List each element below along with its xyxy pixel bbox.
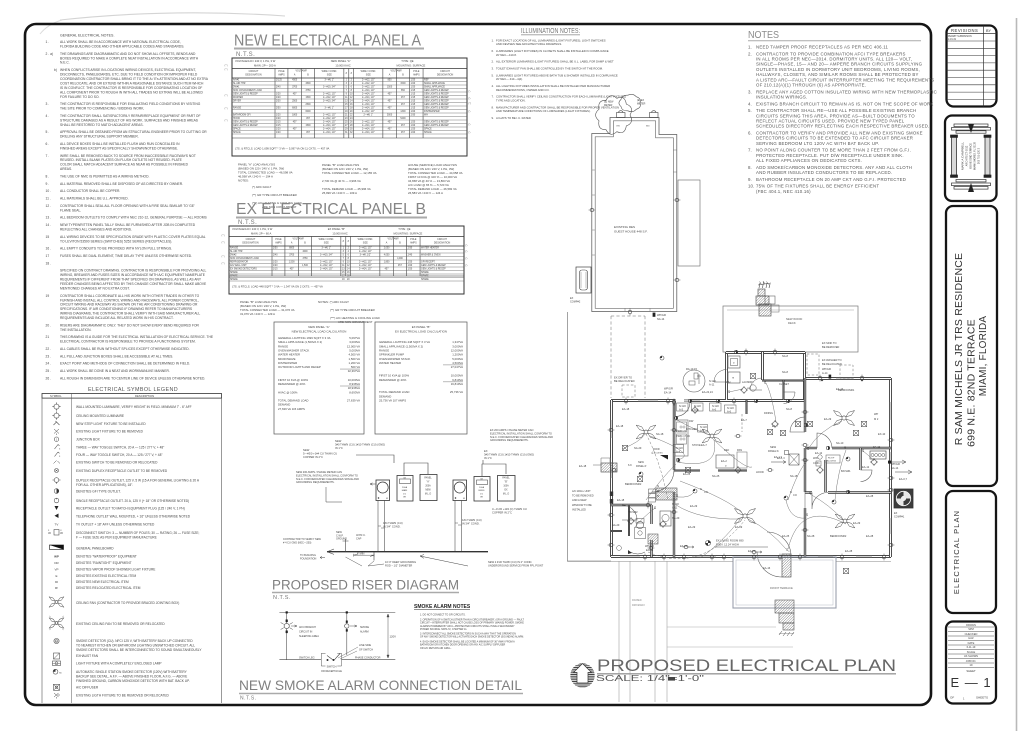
svg-text:ROD – 1/2" DIAMETER: ROD – 1/2" DIAMETER: [385, 564, 412, 568]
svg-text:A-6: A-6: [700, 429, 705, 433]
svg-text:THE CONTRACTOR IS RESPONSIBLE: THE CONTRACTOR IS RESPONSIBLE FOR EVALUA…: [60, 102, 201, 106]
svg-text:CIRCUIT: CIRCUIT: [246, 238, 256, 241]
svg-text:2—#14, 1/2": 2—#14, 1/2": [359, 269, 372, 271]
svg-text:5 .: 5 .: [46, 130, 50, 134]
svg-text:BATH#1: BATH#1: [841, 469, 851, 473]
svg-text:1/20: 1/20: [411, 129, 416, 131]
svg-text:CIRCUIT WIRING AND RACEWAY AS: CIRCUIT WIRING AND RACEWAY AS SHOWN ON T…: [60, 303, 198, 307]
svg-text:ALL DEVICE BOXES SHALL BE INST: ALL DEVICE BOXES SHALL BE INSTALLED FLUS…: [60, 142, 180, 146]
svg-text:2—#14, 1/2": 2—#14, 1/2": [362, 97, 375, 99]
svg-text:4000: 4000: [302, 251, 308, 253]
svg-text:JOB NO.: JOB NO.: [966, 659, 977, 663]
svg-text:NA-14: NA-14: [657, 317, 665, 321]
svg-text:IN 1"C: IN 1"C: [484, 456, 492, 460]
svg-text:N.E.C. FOR DEDICATED CLEARANCE: N.E.C. FOR DEDICATED CLEARANCES SPACE AN…: [490, 435, 553, 439]
svg-text:GEN LIGHTS & RECEP: GEN LIGHTS & RECEP: [424, 94, 449, 96]
svg-text:EA-25: EA-25: [748, 549, 756, 553]
svg-text:EX ELECTRICAL LOAD CALCULATION: EX ELECTRICAL LOAD CALCULATION: [395, 330, 447, 334]
svg-text:6.: 6.: [748, 131, 752, 136]
svg-text:NA-8: NA-8: [782, 370, 788, 374]
svg-text:(**): (**): [222, 242, 225, 244]
svg-text:2—#14, 1/2": 2—#14, 1/2": [323, 132, 336, 134]
svg-text:699 NE 82ND TERRACE: 699 NE 82ND TERRACE: [970, 143, 973, 169]
svg-text:2/40: 2/40: [408, 255, 413, 257]
svg-text:3 .: 3 .: [46, 102, 50, 106]
svg-text:TOILET EXHAUST FAN SHALL BE CO: TOILET EXHAUST FAN SHALL BE CONTROLLED B…: [496, 67, 603, 71]
svg-text:3/4"R.C.: 3/4"R.C.: [356, 533, 366, 537]
svg-text:AND RUBBER INSULATED CONDUC: AND RUBBER INSULATED CONDUCTORS TO BE RE…: [756, 170, 892, 175]
svg-text:1#4 THWN (CU): 1#4 THWN (CU): [462, 518, 482, 522]
svg-text:GEN LIGHTS & RECEP: GEN LIGHTS & RECEP: [424, 122, 449, 124]
svg-text:N: N: [700, 487, 702, 491]
svg-text:WP/GFI: WP/GFI: [657, 313, 667, 317]
svg-text:DRILLING ANY STRUCTURAL SUPPOR: DRILLING ANY STRUCTURAL SUPPORT MEMBER.: [60, 135, 139, 139]
svg-text:EA-7: EA-7: [741, 418, 747, 422]
svg-text:2—#12, 1/2": 2—#12, 1/2": [323, 115, 336, 117]
svg-text:3R: 3R: [403, 497, 406, 499]
svg-text:R SAM MICHELS JR TRS RESI: R SAM MICHELS JR TRS RESIDENCE: [953, 253, 965, 446]
svg-text:LIGHT FIXTURE WITH A COMPLETEL: LIGHT FIXTURE WITH A COMPLETELY ENCLOSED…: [76, 662, 162, 666]
svg-text:POLE: POLE: [413, 71, 420, 73]
svg-text:WP/GFI: WP/GFI: [891, 462, 901, 466]
svg-text:PANEL: PANEL: [502, 477, 510, 480]
svg-text:EX PANEL "B": EX PANEL "B": [328, 227, 345, 231]
svg-text:N GFI: N GFI: [676, 446, 683, 450]
svg-text:(*) ARC FAULT: (*) ARC FAULT: [252, 185, 272, 189]
svg-text:1.: 1.: [492, 39, 495, 43]
svg-text:2—#12, 1/2": 2—#12, 1/2": [323, 118, 336, 120]
svg-text:26,583 VA / 240 V — 124: 26,583 VA / 240 V — 124 A: [408, 191, 443, 195]
svg-text:1500: 1500: [305, 125, 311, 127]
svg-text:7 .: 7 .: [46, 154, 50, 158]
svg-text:A-4: A-4: [676, 450, 681, 454]
svg-text:CO: CO: [704, 490, 708, 494]
svg-text:A-11: A-11: [709, 383, 715, 387]
svg-text:SCALE: SCALE: [967, 650, 976, 654]
svg-text:MIAMI, FLORIDA: MIAMI, FLORIDA: [978, 316, 989, 397]
svg-text:EX LIVING ROOM 690: EX LIVING ROOM 690: [716, 539, 744, 543]
svg-text:INSULATION WIRINGS.: INSULATION WIRINGS.: [756, 95, 807, 100]
svg-text:GEN LIGHTS & RECEP: GEN LIGHTS & RECEP: [424, 101, 449, 103]
svg-text:THREE — WAY TOGGLE SWITCH, 20: THREE — WAY TOGGLE SWITCH, 20 A — 125 / …: [76, 446, 164, 450]
svg-text:ROOF: ROOF: [653, 448, 660, 451]
svg-text:ALL ROUGH IN DIMENSION ARE TO: ALL ROUGH IN DIMENSION ARE TO CENTER LIN…: [60, 376, 205, 380]
svg-text:1/15: 1/15: [411, 108, 416, 110]
svg-text:TELEPHONE OUTLET WALL MOUNTED,: TELEPHONE OUTLET WALL MOUNTED, + 16" UNL…: [76, 515, 191, 519]
svg-text:DW#2: DW#2: [230, 255, 237, 257]
svg-text:16,819VA: 16,819VA: [451, 382, 463, 386]
svg-text:N: N: [790, 490, 792, 494]
svg-text:SCALE: 1/4"=1'-0": SCALE: 1/4"=1'-0": [596, 674, 704, 683]
svg-text:REMAINDER @ 40%: REMAINDER @ 40%: [379, 378, 407, 382]
svg-text:REVISIONS: REVISIONS: [951, 28, 978, 33]
svg-text:FEEDER CHANGES BEING AFFECTED: FEEDER CHANGES BEING AFFECTED BY THIS CH…: [60, 282, 207, 286]
svg-text:100A: 100A: [503, 485, 509, 488]
svg-text:8.: 8.: [492, 105, 495, 109]
svg-text:m: m: [732, 377, 734, 380]
svg-text:WALL MOUNTED LUMINAIRE, VERIFY: WALL MOUNTED LUMINAIRE, VERIFY HEIGHT IN…: [76, 405, 192, 409]
svg-text:18 .: 18 .: [46, 261, 52, 265]
svg-text:N.T.S.: N.T.S.: [273, 595, 291, 601]
svg-text:2—#12, 1/2": 2—#12, 1/2": [362, 80, 375, 82]
svg-text:5400: 5400: [400, 118, 406, 120]
svg-text:N GFI: N GFI: [700, 425, 707, 429]
svg-text:REFLECTING ALL CHANGES AND ADD: REFLECTING ALL CHANGES AND ADDITIONS.: [60, 227, 132, 231]
svg-text:WASHER & OVEN: WASHER & OVEN: [421, 254, 441, 257]
svg-text:SHEET: SHEET: [966, 669, 976, 673]
svg-text:SMOKE: SMOKE: [360, 626, 369, 629]
svg-text:ALL EMPTY CONDUITS TO BE PROVI: ALL EMPTY CONDUITS TO BE PROVIDED WITH N…: [60, 247, 172, 251]
svg-text:1,800: 1,800: [384, 262, 390, 264]
svg-text:2—#12, 1/2": 2—#12, 1/2": [362, 111, 375, 113]
svg-text:VOLT AMP.: VOLT AMP.: [390, 70, 402, 73]
svg-text:COST RELOCATE, AND OR EXTEND W: COST RELOCATE, AND OR EXTEND WITHIN A RE…: [60, 81, 204, 85]
svg-text:WIRE / COND.: WIRE / COND.: [322, 71, 338, 73]
svg-text:24 .: 24 .: [46, 362, 52, 366]
svg-text:ROOF: ROOF: [828, 458, 835, 460]
svg-text:NEW: NEW: [770, 445, 777, 449]
svg-text:CIRCUIT: CIRCUIT: [440, 70, 450, 73]
svg-text:EX DRYER TO: EX DRYER TO: [614, 376, 632, 380]
svg-text:26 .: 26 .: [46, 376, 52, 380]
svg-text:13 .: 13 .: [46, 216, 52, 220]
svg-text:A-6: A-6: [712, 408, 717, 412]
svg-text:POLE: POLE: [275, 239, 282, 241]
svg-text:GEN LIGHTS & RECEP: GEN LIGHTS & RECEP: [233, 122, 258, 124]
svg-text:2/50: 2/50: [276, 108, 281, 110]
svg-text:VOLTAGE/120 / 240 V, 1 PH, 3 W: VOLTAGE/120 / 240 V, 1 PH, 3 W: [232, 227, 273, 231]
svg-text:VOLT AMP.: VOLT AMP.: [387, 238, 399, 241]
svg-text:4,000: 4,000: [384, 255, 390, 257]
svg-text:FINISHED GROUND, CARBON MONOXI: FINISHED GROUND, CARBON MONOXIDE DETECTO…: [76, 679, 190, 683]
svg-text:WIRING, BREAKER AND FUSES SIZE: WIRING, BREAKER AND FUSES SIZES IN ACCOR…: [60, 273, 206, 277]
svg-text:SPACE: SPACE: [233, 131, 241, 134]
svg-text:EA-29: EA-29: [690, 504, 698, 508]
svg-text:10,000 KAIC: 10,000 KAIC: [332, 231, 347, 235]
svg-text:9 .: 9 .: [46, 182, 50, 186]
svg-text:4.: 4.: [492, 84, 495, 88]
svg-text:1/20: 1/20: [276, 129, 281, 131]
svg-text:VOLT AMP.: VOLT AMP.: [296, 70, 308, 73]
svg-text:N.E.C. FOR DEDICATED CLEARANCE: N.E.C. FOR DEDICATED CLEARANCES SPACE AN…: [296, 477, 359, 481]
svg-text:S: S: [657, 494, 659, 498]
svg-text:THE CONTRACTOR SHALL SATISFACT: THE CONTRACTOR SHALL SATISFACTORILY REPA…: [60, 114, 201, 118]
svg-text:1/20: 1/20: [276, 97, 281, 99]
svg-text:11 .: 11 .: [46, 197, 51, 201]
svg-text:8 .: 8 .: [46, 174, 50, 178]
svg-text:NEW ELECTRICAL PANEL A: NEW ELECTRICAL PANEL A: [234, 33, 422, 50]
svg-text:WP/GFI: WP/GFI: [822, 367, 832, 371]
svg-text:BE RELOCATED: BE RELOCATED: [614, 379, 635, 383]
svg-text:A/C DIFFUSER: A/C DIFFUSER: [76, 686, 99, 690]
svg-text:ALL FIXED APPLIANCES ON DE: ALL FIXED APPLIANCES ON DEDICATED CKTS.: [756, 158, 862, 163]
svg-text:MENTIONED CHANGES AT NO EXTRA: MENTIONED CHANGES AT NO EXTRA COST.: [60, 286, 130, 290]
svg-text:7.: 7.: [748, 148, 752, 153]
svg-text:EX SMOKE DETECTORS: EX SMOKE DETECTORS: [230, 269, 257, 271]
svg-text:EA-18: EA-18: [579, 464, 587, 468]
svg-text:KITCHEN: KITCHEN: [686, 427, 698, 431]
svg-text:N GFI: N GFI: [694, 404, 701, 408]
svg-text:TO NEAREST KITCHEN OR BATHROOM: TO NEAREST KITCHEN OR BATHROOM LIGHTING …: [76, 643, 195, 647]
svg-text:WIRING DIAGRAMS, THE CONTRACTO: WIRING DIAGRAMS, THE CONTRACTOR SHALL VE…: [60, 312, 200, 316]
svg-text:N.T.S.: N.T.S.: [240, 696, 257, 702]
svg-text:NON CONCURRENT LOAD: NON CONCURRENT LOAD: [230, 257, 259, 260]
svg-text:AS SHOWN: AS SHOWN: [964, 654, 978, 658]
svg-text:MIAMI SHORES, FL 33138: MIAMI SHORES, FL 33138: [974, 141, 977, 170]
svg-text:RANGE: RANGE: [233, 107, 242, 110]
svg-text:(**): (**): [225, 65, 228, 67]
svg-text:2—#14, 1/2": 2—#14, 1/2": [362, 101, 375, 103]
svg-text:AFCI BRANCH: AFCI BRANCH: [299, 626, 316, 629]
svg-text:IN 3/4" COND.: IN 3/4" COND.: [462, 522, 480, 526]
svg-text:2500: 2500: [292, 101, 298, 103]
svg-text:DESIGNATION: DESIGNATION: [434, 242, 451, 245]
svg-text:M 2: M 2: [874, 417, 879, 421]
svg-text:OF SWITCH: OF SWITCH: [359, 648, 373, 651]
svg-text:EA-29: EA-29: [824, 417, 832, 421]
svg-text:PAN: PAN: [737, 448, 742, 452]
svg-text:RISERS ARE DIAGRAMMATIC ONLY.: RISERS ARE DIAGRAMMATIC ONLY. THEY DO NO…: [60, 323, 200, 327]
svg-text:S: S: [764, 381, 766, 385]
svg-text:JUNCTION BOX: JUNCTION BOX: [76, 438, 101, 442]
svg-text:PHASE CONDUCTOR: PHASE CONDUCTOR: [355, 656, 381, 659]
svg-text:200A: 200A: [425, 485, 431, 488]
svg-text:ILLUMINATION NOTES:: ILLUMINATION NOTES:: [521, 26, 580, 35]
svg-text:BE RELOCATED: BE RELOCATED: [822, 362, 842, 366]
svg-text:S: S: [844, 446, 846, 450]
svg-text:(**): (**): [468, 103, 471, 105]
svg-text:(*): (*): [468, 91, 471, 93]
svg-text:BATHROOM GFI: BATHROOM GFI: [233, 114, 251, 117]
svg-text:3—#6, 1": 3—#6, 1": [325, 80, 335, 82]
svg-text:AMPS: AMPS: [413, 74, 420, 77]
svg-text:ELEV. 12.24' HIGH: ELEV. 12.24' HIGH: [716, 543, 739, 547]
svg-text:BID: BID: [646, 126, 650, 128]
svg-text:THE DRAWINGS ARE DIAGRAMMATIC: THE DRAWINGS ARE DIAGRAMMATIC AND DO NOT…: [60, 52, 196, 56]
svg-text:6-11-19: 6-11-19: [967, 645, 976, 649]
svg-text:A/A#1: A/A#1: [233, 79, 240, 82]
svg-text:3R: 3R: [480, 497, 483, 499]
svg-text:699 N.E. 82ND TERRACE: 699 N.E. 82ND TERRACE: [966, 319, 978, 447]
svg-text:2/30: 2/30: [411, 115, 416, 117]
svg-text:BOXES REQUIRED TO MAKE A COMPL: BOXES REQUIRED TO MAKE A COMPLETE NEAT I…: [60, 56, 199, 60]
svg-text:EA-12: EA-12: [873, 445, 881, 449]
svg-text:W/ NEC—410.8.: W/ NEC—410.8.: [496, 53, 517, 57]
svg-text:HOOD: HOOD: [233, 118, 240, 120]
svg-text:1/20: 1/20: [408, 269, 413, 271]
svg-text:3#0 THWN (CU) 1#10 THWN (CU) (: 3#0 THWN (CU) 1#10 THWN (CU) (GND): [484, 453, 534, 457]
svg-text:2 . a): 2 . a): [46, 52, 54, 56]
svg-text:EXISTING DUPLEX RECEPTACLE OUT: EXISTING DUPLEX RECEPTACLE OUTLET TO BE …: [76, 469, 168, 473]
svg-text:NEW PANEL "A": NEW PANEL "A": [308, 325, 330, 329]
svg-text:FRONT TERRACE: FRONT TERRACE: [770, 586, 793, 590]
svg-text:AI HATS TO BE I.C. RATED: AI HATS TO BE I.C. RATED: [496, 116, 531, 120]
svg-text:(**): (**): [222, 256, 225, 258]
svg-text:HAZ: HAZ: [968, 636, 974, 640]
svg-text:SCHEDULES DIRECTORY REFLECTI: SCHEDULES DIRECTORY REFLECTING EACH RESP…: [756, 124, 929, 129]
svg-text:1/20: 1/20: [411, 125, 416, 127]
svg-text:SIZE: SIZE: [366, 75, 372, 77]
svg-text:10,000 KAIC: 10,000 KAIC: [335, 63, 350, 67]
svg-text:SWITCH: SWITCH: [327, 666, 337, 669]
svg-text:REQUIREMENTS IF DIFFERENT FROM: REQUIREMENTS IF DIFFERENT FROM THAT SPEC…: [60, 278, 202, 282]
svg-text:EA-28: EA-28: [845, 549, 853, 553]
svg-text:2—#12, 1/2": 2—#12, 1/2": [323, 97, 336, 99]
svg-text:GEN LIGHTS & RECEP: GEN LIGHTS & RECEP: [233, 125, 258, 127]
svg-text:CIRCUIT IN: CIRCUIT IN: [299, 630, 312, 633]
svg-text:PANEL'A': PANEL'A': [636, 465, 647, 468]
svg-text:N GFI: N GFI: [709, 379, 716, 383]
svg-text:OR A/C RETURN AIR GRILL.: OR A/C RETURN AIR GRILL.: [420, 647, 452, 650]
svg-text:BATHROOM RECEPTACLE ON 20: BATHROOM RECEPTACLE ON 20 AMP CKT AND G.…: [756, 177, 906, 182]
svg-text:2.: 2.: [748, 51, 752, 56]
svg-text:NEW TYPEWRITTEN PANEL TALLY SH: NEW TYPEWRITTEN PANEL TALLY SHALL BE FUR…: [60, 223, 196, 227]
svg-text:S: S: [654, 506, 656, 510]
svg-text:4500: 4500: [305, 83, 311, 85]
svg-text:EX: EX: [504, 490, 508, 492]
svg-text:AND DEVISES SEE ARCHITECTURAL: AND DEVISES SEE ARCHITECTURAL DRAWINGS.: [496, 42, 562, 46]
svg-text:LTS. & RTCLS. LOAD 1,699: LTS. & RTCLS. LOAD 1,699 SQFT * 3 VA — 5…: [235, 147, 330, 151]
svg-text:(**) GR TYPE CIRCUIT BREAKER: (**) GR TYPE CIRCUIT BREAKER: [252, 193, 297, 197]
svg-text:10'-0" DEEP GROUNDING: 10'-0" DEEP GROUNDING: [385, 560, 416, 564]
svg-text:WIRE / COND.: WIRE / COND.: [358, 239, 374, 241]
svg-text:M: M: [463, 498, 465, 500]
svg-text:2—#14, 1/2": 2—#14, 1/2": [323, 125, 336, 127]
svg-text:M: M: [386, 498, 388, 500]
svg-text:CEILING MOUNTED LUMINAIRE: CEILING MOUNTED LUMINAIRE: [76, 414, 124, 418]
svg-text:(**): (**): [225, 108, 228, 110]
svg-text:1.: 1.: [748, 45, 752, 50]
svg-text:A/C WALL UNIT: A/C WALL UNIT: [572, 489, 591, 493]
svg-text:305 751-120 3: 305 751-120 3: [978, 147, 981, 164]
svg-text:ALL CONDUCTOR SHALL BE COPPER.: ALL CONDUCTOR SHALL BE COPPER.: [60, 189, 120, 193]
svg-text:1/20: 1/20: [273, 262, 278, 264]
svg-text:NEW PANEL "A": NEW PANEL "A": [331, 59, 351, 63]
svg-text:VOLTAGE/120 / 240 V, 1 PH, 3 W: VOLTAGE/120 / 240 V, 1 PH, 3 W: [235, 59, 276, 63]
svg-text:(*): (*): [468, 111, 471, 113]
svg-text:ELECTRICAL PLAN: ELECTRICAL PLAN: [952, 510, 961, 594]
svg-text:PROPOSED ELECTRICAL PLAN: PROPOSED ELECTRICAL PLAN: [597, 657, 896, 675]
svg-text:31,076 VA / 240 V — 129: 31,076 VA / 240 V — 129 A: [240, 312, 275, 316]
svg-text:1/20: 1/20: [276, 132, 281, 134]
svg-text:NEW STEP LIGHT FIXTURE TO BE I: NEW STEP LIGHT FIXTURE TO BE INSTALLED: [76, 422, 146, 426]
svg-text:2.: 2.: [492, 60, 495, 64]
svg-text:1/20: 1/20: [411, 132, 416, 134]
svg-text:32,367VA: 32,367VA: [348, 369, 360, 373]
svg-text:4.: 4.: [748, 101, 752, 106]
svg-text:NEED TAMPER PROOF RECEPTACLES: NEED TAMPER PROOF RECEPTACLES AS PER NEC…: [756, 45, 889, 50]
svg-text:3700: 3700: [292, 87, 298, 89]
svg-text:ELECTRICAL SYMBOL LEGEND: ELECTRICAL SYMBOL LEGEND: [88, 387, 178, 393]
svg-text:EA-29: EA-29: [853, 521, 861, 525]
svg-text:1/15: 1/15: [276, 122, 281, 124]
svg-text:LTS. & RTCLS. LOAD 448: LTS. & RTCLS. LOAD 448 SQFT * 3 VA — 1,3…: [232, 285, 323, 289]
svg-text:EA-22,24: EA-22,24: [702, 390, 713, 394]
svg-text:6 .: 6 .: [46, 142, 50, 146]
svg-text:WP: WP: [54, 555, 59, 559]
svg-text:2—#14, 1/2": 2—#14, 1/2": [362, 104, 375, 106]
svg-text:FLORIDA BUILDING CODE AND OTHE: FLORIDA BUILDING CODE AND OTHER APPLICAB…: [60, 44, 184, 48]
svg-text:GUEST HOUSE 448 S.F.: GUEST HOUSE 448 S.F.: [614, 230, 648, 234]
svg-text:25,736 VA: 25,736 VA: [450, 390, 463, 394]
svg-text:3700: 3700: [289, 255, 295, 257]
svg-text:EA-0,7: EA-0,7: [899, 477, 907, 481]
svg-text:NEW: NEW: [335, 439, 342, 443]
svg-text:EXISTING LIGHT FIXTURE TO BE R: EXISTING LIGHT FIXTURE TO BE REMOVED: [76, 430, 144, 434]
svg-text:WATER HEATER: WATER HEATER: [421, 247, 439, 250]
svg-text:MOUNTING: SURFACE: MOUNTING: SURFACE: [394, 231, 423, 235]
svg-text:N.T.S.: N.T.S.: [236, 52, 255, 58]
svg-text:(**): (**): [225, 69, 228, 71]
svg-text:MAIN: 2P— 200 A: MAIN: 2P— 200 A: [254, 63, 276, 67]
svg-text:EXACT POINT AND METHODS OF CON: EXACT POINT AND METHODS OF CONNECTION SH…: [60, 362, 190, 366]
svg-text:1/20: 1/20: [408, 265, 413, 267]
svg-text:NA-18: NA-18: [790, 474, 798, 478]
svg-text:E — 1: E — 1: [950, 675, 991, 690]
svg-text:MAIN: 2P— 60 A: MAIN: 2P— 60 A: [251, 231, 272, 235]
svg-text:PROPOSED RISER DIAGRAM: PROPOSED RISER DIAGRAM: [272, 578, 459, 593]
svg-text:1/15: 1/15: [411, 97, 416, 99]
svg-text:EA-16: EA-16: [763, 566, 771, 570]
svg-text:WIRE SHALL BE REMOVED BACK TO: WIRE SHALL BE REMOVED BACK TO SOURCE FRO…: [60, 154, 196, 158]
svg-text:METER: METER: [637, 103, 646, 106]
svg-text:NOTES:: NOTES:: [238, 179, 249, 183]
svg-text:1/20: 1/20: [276, 118, 281, 120]
svg-text:CIRCUIT: CIRCUIT: [437, 238, 447, 241]
svg-text:EA-28: EA-28: [866, 534, 874, 538]
svg-text:EA-28: EA-28: [866, 494, 874, 498]
svg-text:WP: WP: [874, 412, 878, 416]
svg-text:POLE: POLE: [410, 239, 417, 241]
svg-text:PANEL: PANEL: [424, 477, 432, 480]
svg-text:EXHAUST FAN: EXHAUST FAN: [76, 654, 99, 658]
svg-text:S: S: [676, 494, 678, 498]
svg-text:17: 17: [46, 254, 50, 258]
svg-text:DW: DW: [689, 419, 694, 423]
svg-text:POLE: POLE: [278, 71, 285, 73]
svg-text:2—#14, 1/2": 2—#14, 1/2": [323, 122, 336, 124]
svg-text:SINGLE RECEPTACLE OUTLET. 20: SINGLE RECEPTACLE OUTLET. 20 A, 125 V (+…: [76, 499, 189, 503]
svg-text:N GFI: N GFI: [727, 406, 734, 410]
svg-text:IS IN CONFLICT. THE CONTRACTO: IS IN CONFLICT. THE CONTRACTOR IS RESPON…: [60, 86, 202, 90]
svg-text:BACKUP SEE DETAIL, A.F.F. — AB: BACKUP SEE DETAIL, A.F.F. — ABOVE FINISH…: [76, 674, 187, 678]
svg-text:COORDINATION CONTRACTOR SHALL: COORDINATION CONTRACTOR SHALL BRING IT T…: [60, 77, 209, 81]
svg-text:1/15: 1/15: [411, 94, 416, 96]
svg-text:1/20: 1/20: [276, 115, 281, 117]
svg-text:25,736 VA 107 AMPS: 25,736 VA 107 AMPS: [379, 398, 406, 402]
svg-text:SIZE: SIZE: [363, 243, 369, 245]
svg-text:EA-18: EA-18: [622, 407, 630, 411]
svg-text:23 .: 23 .: [46, 354, 52, 358]
svg-text:DINING: DINING: [764, 411, 773, 415]
svg-text:ALARM: ALARM: [360, 630, 369, 633]
svg-text:GEN LIGHTS & RECEP: GEN LIGHTS & RECEP: [421, 269, 446, 271]
svg-text:RECEPTACLE OUTLET TO MATCH EQ: RECEPTACLE OUTLET TO MATCH EQUIPMENT PLU…: [76, 507, 185, 511]
svg-text:2—#12, 1/2": 2—#12, 1/2": [359, 248, 372, 250]
svg-text:NA-29: NA-29: [634, 446, 642, 450]
svg-text:EA-25: EA-25: [680, 544, 688, 548]
svg-text:NA-29: NA-29: [672, 516, 680, 520]
svg-text:COLOR SHALL MATCH ADJACENT SUR: COLOR SHALL MATCH ADJACENT SURFACE AS NE…: [60, 163, 189, 167]
svg-text:DENOTES RELOCATED ELECTRICAL I: DENOTES RELOCATED ELECTRICAL ITEM: [76, 586, 141, 590]
svg-text:1800: 1800: [292, 115, 298, 117]
svg-text:2—#14, 1/2": 2—#14, 1/2": [362, 94, 375, 96]
svg-text:2—#14, 1/2": 2—#14, 1/2": [362, 132, 375, 134]
svg-text:FUSES SHALL BE DUAL ELEMENT, T: FUSES SHALL BE DUAL ELEMENT, TIME DELAY …: [60, 254, 192, 258]
svg-text:CU#1: CU#1: [813, 461, 820, 465]
svg-text:N.T.S.: N.T.S.: [238, 220, 257, 226]
svg-text:3750: 3750: [302, 258, 308, 260]
